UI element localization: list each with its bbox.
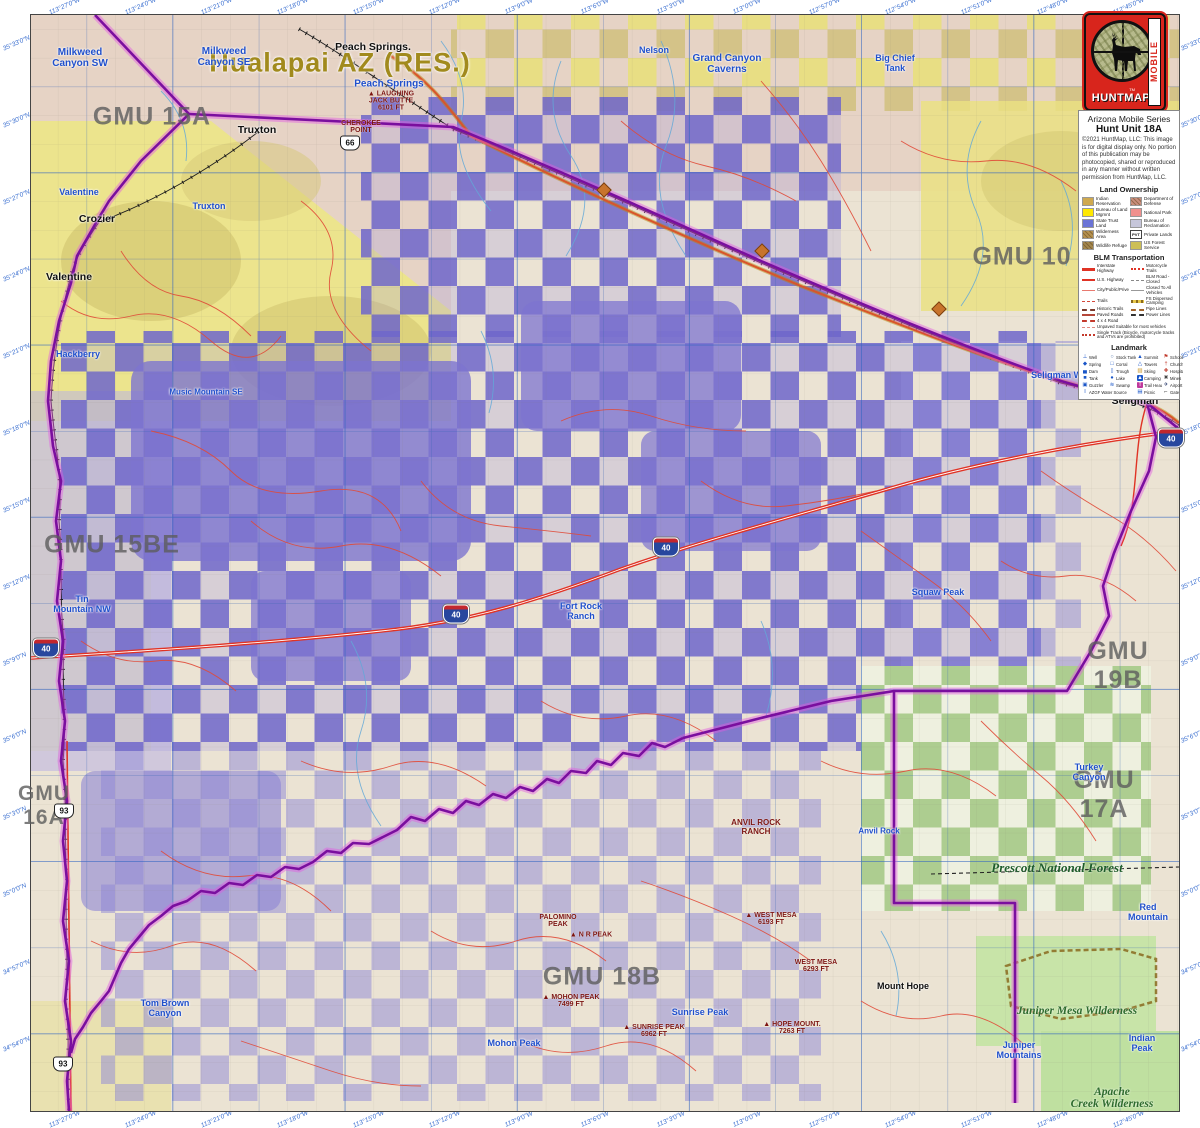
coordinate-label: 35°24'0"N [2,265,31,283]
transportation-legend: Interstate HighwayMotorcycle TrailsU.S. … [1082,264,1176,340]
legend-landmark-item: ■Tank [1082,375,1108,381]
legend-transportation-item: Motorcycle Trails [1131,264,1176,274]
coordinate-label: 112°51'0"W [960,1109,993,1128]
legend-land-item: State Trust Land [1082,218,1128,228]
legend-panel: Arizona Mobile Series Hunt Unit 18A ©202… [1078,110,1180,400]
line-style-sample [1082,268,1095,271]
land-label: Indian Reservation [1096,196,1128,206]
hospital-icon: ✚ [1163,368,1169,374]
scope-reticle-icon [1091,20,1153,82]
camping-icon: ▲ [1137,375,1143,381]
lake-icon: ● [1109,375,1115,381]
legend-landmark-item: ⌐Gate [1163,389,1183,395]
line-style-sample [1131,309,1144,311]
map-canvas [30,14,1180,1112]
coordinate-labels-bottom: 113°27'0"W113°24'0"W113°21'0"W113°18'0"W… [0,1112,1200,1128]
picnic-icon: ▤ [1137,389,1143,395]
legend-landmark-item: ▨Skiing [1137,368,1162,374]
coordinate-label: 113°27'0"W [48,1109,81,1128]
land-label: US Forest Service [1144,240,1176,250]
landmark-label: Spring [1089,362,1101,367]
land-label: Department of Defense [1144,196,1176,206]
land-label: Private Lands [1144,232,1172,237]
transportation-label: Unpaved Suitable for most vehicles [1097,325,1166,330]
skiing-icon: ▨ [1137,368,1143,374]
coordinate-label: 34°54'0"N [2,1035,31,1053]
airport-icon: ✈ [1163,382,1169,388]
line-style-sample [1082,320,1095,322]
trail-head-icon: T [1137,382,1143,388]
coordinate-label: 113°15'0"W [352,1109,385,1128]
land-color-swatch [1082,241,1094,250]
landmark-label: Trail Head [1144,383,1162,388]
landmark-label: Mines [1170,376,1181,381]
land-ownership-title: Land Ownership [1082,185,1176,194]
line-style-sample [1131,280,1144,281]
dam-icon: ▄ [1082,368,1088,374]
legend-transportation-item: Trails [1082,297,1129,307]
coordinate-label: 35°27'0"N [1180,188,1200,206]
legend-transportation-item: Power Lines [1131,313,1176,318]
legend-land-item: Wildlife Refuge [1082,240,1128,250]
trough-icon: ▯ [1109,368,1115,374]
coordinate-label: 113°21'0"W [200,1109,233,1128]
coordinate-labels-right: 35°33'0"N35°30'0"N35°27'0"N35°24'0"N35°2… [1180,0,1200,1128]
line-style-sample [1082,327,1095,328]
legend-landmark-item: ✚Hospital [1163,368,1183,374]
land-label: Bureau of Reclamation [1144,218,1176,228]
transportation-label: U.S. Highway [1097,278,1124,283]
transportation-label: Single Track (Bicycle, motorcycle tracks… [1097,331,1176,341]
legend-transportation-item: Closed To All Vehicles [1131,286,1176,296]
coordinate-label: 35°9'0"N [1180,651,1200,668]
azgf-water-source-icon: I [1082,389,1088,395]
landmark-label: Tank [1089,376,1098,381]
coordinate-label: 112°48'0"W [1036,1109,1069,1128]
landmark-label: Skiing [1144,369,1155,374]
series-title: Arizona Mobile Series [1082,114,1176,124]
legend-landmark-item: †Church [1163,361,1183,367]
huntmap-logo: HUNTMAP TM MOBILE [1084,13,1166,111]
map-linework [31,15,1179,1111]
legend-landmark-item: ⚑School [1163,354,1183,360]
legend-transportation-item: Single Track (Bicycle, motorcycle tracks… [1082,331,1176,341]
coordinate-label: 35°33'0"N [1180,34,1200,52]
landmark-label: Stock Tank [1116,355,1136,360]
landmark-label: Airport [1170,383,1182,388]
coordinate-label: 35°15'0"N [2,496,31,514]
landmark-label: Picnic [1144,390,1155,395]
coordinate-label: 35°9'0"N [2,651,28,668]
legend-landmark-item: ⊥Well [1082,354,1108,360]
land-color-swatch [1130,241,1142,250]
land-color-swatch [1130,197,1142,206]
legend-transportation-item: BLM Road - Closed [1131,275,1176,285]
transportation-label: FS Dispersed Camping [1146,297,1176,307]
line-style-sample [1131,314,1144,316]
copyright-text: ©2021 HuntMap, LLC: This image is for di… [1082,137,1176,182]
legend-landmark-item: ○Stock Tank [1109,354,1136,360]
line-style-sample [1131,290,1144,291]
coordinate-label: 35°15'0"N [1180,496,1200,514]
landmark-label: Gate [1170,390,1179,395]
coordinate-label: 113°24'0"W [124,1109,157,1128]
coordinate-label: 34°57'0"N [2,958,31,976]
land-color-swatch: PVT [1130,230,1142,239]
landmark-label: Dam [1089,369,1098,374]
coordinate-label: 35°33'0"N [2,34,31,52]
legend-landmark-item: ▣Guzzler [1082,382,1108,388]
landmark-label: Towers [1144,362,1157,367]
land-label: Bureau of Land Mgmnt [1096,207,1128,217]
coordinate-label: 113°0'0"W [732,1110,762,1128]
legend-land-item: Bureau of Land Mgmnt [1082,207,1128,217]
spring-icon: ◆ [1082,361,1088,367]
legend-land-item: Department of Defense [1130,196,1176,206]
coordinate-label: 35°0'0"N [1180,882,1200,899]
legend-landmark-item: TTrail Head [1137,382,1162,388]
legend-land-item: Indian Reservation [1082,196,1128,206]
legend-transportation-item: Unpaved Suitable for most vehicles [1082,325,1176,330]
land-ownership-legend: Indian ReservationDepartment of DefenseB… [1082,196,1176,250]
coordinate-label: 35°30'0"N [2,111,31,129]
legend-landmark-item: △Towers [1137,361,1162,367]
logo-mobile-strip: MOBILE [1148,18,1161,106]
land-label: State Trust Land [1096,218,1128,228]
legend-landmark-item: IAZGF Water Source [1082,389,1136,395]
legend-landmark-item: □Corral [1109,361,1136,367]
line-style-sample [1082,290,1095,291]
transportation-label: Power Lines [1146,313,1170,318]
legend-landmark-item: ▯Trough [1109,368,1136,374]
unit-title: Hunt Unit 18A [1082,124,1176,135]
legend-landmark-item: ▲Camping [1137,375,1162,381]
legend-landmark-item: ▄Dam [1082,368,1108,374]
mines-icon: ✖ [1163,375,1169,381]
stock-tank-icon: ○ [1109,354,1115,360]
legend-land-item: Wilderness Area [1082,229,1128,239]
gate-icon: ⌐ [1163,389,1169,395]
transportation-label: City/Public/Prive [1097,288,1129,293]
legend-landmark-item: ◆Spring [1082,361,1108,367]
land-color-swatch [1082,208,1094,217]
trademark-mark: TM [1129,87,1135,92]
landmark-label: Church [1170,362,1183,367]
landmark-label: Guzzler [1089,383,1103,388]
coordinate-label: 35°24'0"N [1180,265,1200,283]
landmark-label: Swamp [1116,383,1130,388]
school-icon: ⚑ [1163,354,1169,360]
legend-landmark-item: ✈Airport [1163,382,1183,388]
coordinate-label: 34°57'0"N [1180,958,1200,976]
coordinate-label: 34°54'0"N [1180,1035,1200,1053]
coordinate-label: 35°6'0"N [1180,728,1200,745]
transportation-label: BLM Road - Closed [1146,275,1176,285]
landmark-label: Well [1089,355,1097,360]
landmark-label: School [1170,355,1183,360]
line-style-sample [1082,301,1095,302]
coordinate-label: 113°6'0"W [580,1110,610,1128]
transportation-label: Trails [1097,299,1108,304]
legend-land-item: US Forest Service [1130,240,1176,250]
line-style-sample [1131,268,1144,270]
coordinate-label: 35°3'0"N [2,805,28,822]
coordinate-label: 113°12'0"W [428,1109,461,1128]
coordinate-label: 113°3'0"W [656,1110,686,1128]
legend-transportation-item: FS Dispersed Camping [1131,297,1176,307]
coordinate-label: 35°18'0"N [2,419,31,437]
landmark-legend: ⊥Well○Stock Tank▲Summit⚑School◆Spring□Co… [1082,354,1176,395]
swamp-icon: ≋ [1109,382,1115,388]
landmark-label: Hospital [1170,369,1183,374]
land-color-swatch [1130,208,1142,217]
transportation-label: Closed To All Vehicles [1146,286,1176,296]
coordinate-label: 112°45'0"W [1112,1109,1145,1128]
coordinate-labels-top: 113°27'0"W113°24'0"W113°21'0"W113°18'0"W… [0,0,1200,14]
land-color-swatch [1082,219,1094,228]
land-label: National Park [1144,210,1172,215]
legend-land-item: National Park [1130,207,1176,217]
tank-icon: ■ [1082,375,1088,381]
coordinate-label: 35°30'0"N [1180,111,1200,129]
legend-land-item: PVTPrivate Lands [1130,229,1176,239]
coordinate-label: 35°0'0"N [2,882,28,899]
line-style-sample [1082,334,1095,336]
landmark-label: AZGF Water Source [1089,390,1127,395]
legend-landmark-item: ✖Mines [1163,375,1183,381]
landmark-label: Summit [1144,355,1158,360]
legend-landmark-item: ▲Summit [1137,354,1162,360]
coordinate-label: 35°6'0"N [2,728,28,745]
legend-transportation-item: City/Public/Prive [1082,286,1129,296]
land-color-swatch [1130,219,1142,228]
map-page: 113°27'0"W113°24'0"W113°21'0"W113°18'0"W… [0,0,1200,1128]
coordinate-label: 112°57'0"W [808,1109,841,1128]
legend-transportation-item: Interstate Highway [1082,264,1129,274]
well-icon: ⊥ [1082,354,1088,360]
legend-landmark-item: ▤Picnic [1137,389,1162,395]
land-label: Wildlife Refuge [1096,243,1127,248]
summit-icon: ▲ [1137,354,1143,360]
landmark-title: Landmark [1082,343,1176,352]
legend-landmark-item: ≋Swamp [1109,382,1136,388]
coordinate-label: 35°18'0"N [1180,419,1200,437]
legend-transportation-item: U.S. Highway [1082,275,1129,285]
legend-land-item: Bureau of Reclamation [1130,218,1176,228]
coordinate-label: 35°3'0"N [1180,805,1200,822]
guzzler-icon: ▣ [1082,382,1088,388]
coordinate-label: 113°9'0"W [504,1110,534,1128]
line-style-sample [1082,309,1095,311]
coordinate-label: 35°12'0"N [2,573,31,591]
towers-icon: △ [1137,361,1143,367]
landmark-label: Corral [1116,362,1127,367]
coordinate-label: 35°21'0"N [2,342,31,360]
logo-scope-area: HUNTMAP TM [1089,18,1148,106]
landmark-label: Lake [1116,376,1125,381]
landmark-label: Camping [1144,376,1161,381]
coordinate-label: 113°18'0"W [276,1109,309,1128]
transportation-label: Interstate Highway [1097,264,1129,274]
logo-wordmark: HUNTMAP [1089,92,1153,104]
coordinate-labels-left: 35°33'0"N35°30'0"N35°27'0"N35°24'0"N35°2… [0,0,30,1128]
line-style-sample [1131,300,1144,303]
line-style-sample [1082,279,1095,281]
church-icon: † [1163,361,1169,367]
coordinate-label: 35°27'0"N [2,188,31,206]
coordinate-label: 112°54'0"W [884,1109,917,1128]
line-style-sample [1082,314,1095,316]
coordinate-label: 35°12'0"N [1180,573,1200,591]
legend-landmark-item: ●Lake [1109,375,1136,381]
deer-icon [1100,31,1146,73]
transportation-label: Motorcycle Trails [1146,264,1176,274]
transportation-title: BLM Transportation [1082,253,1176,262]
land-color-swatch [1082,230,1094,239]
landmark-label: Trough [1116,369,1129,374]
land-color-swatch [1082,197,1094,206]
corral-icon: □ [1109,361,1115,367]
land-label: Wilderness Area [1096,229,1128,239]
